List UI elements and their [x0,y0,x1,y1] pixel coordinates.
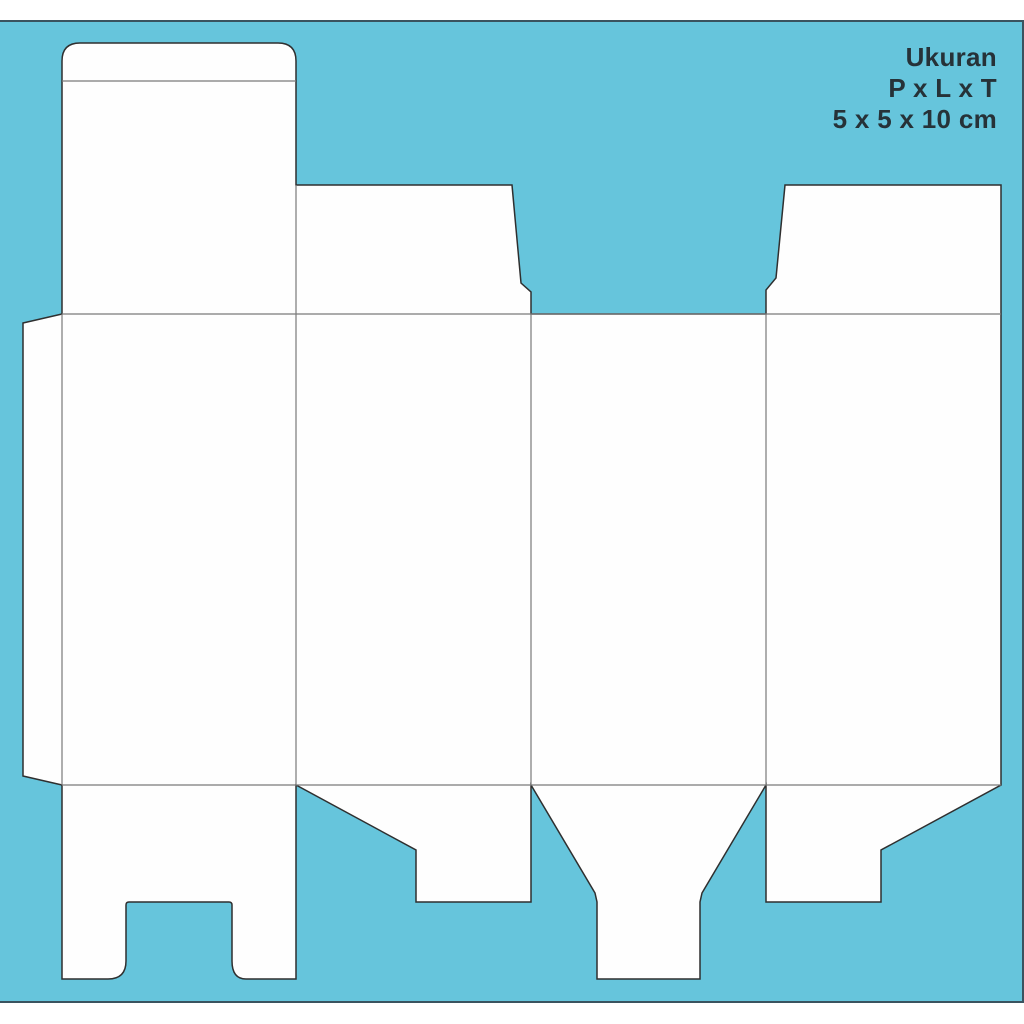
size-formula: P x L x T [833,73,997,104]
size-info: Ukuran P x L x T 5 x 5 x 10 cm [833,42,997,135]
size-title: Ukuran [833,42,997,73]
box-dieline-canvas [0,0,1024,1024]
page: Ukuran P x L x T 5 x 5 x 10 cm [0,0,1024,1024]
size-value: 5 x 5 x 10 cm [833,104,997,135]
